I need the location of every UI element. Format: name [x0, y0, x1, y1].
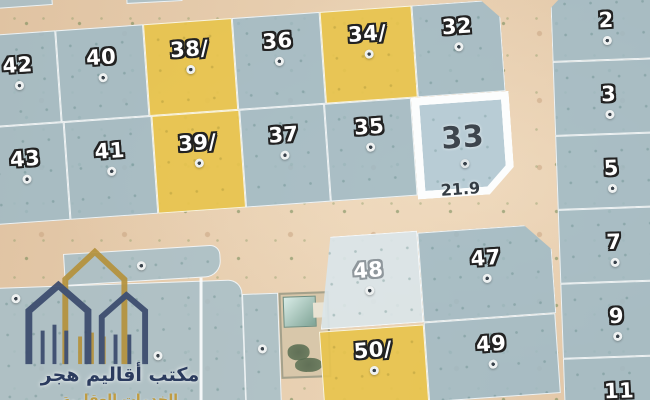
parcel-9[interactable]: 9: [560, 280, 650, 359]
parcel-36[interactable]: 36: [232, 12, 326, 110]
parcel-number: 43: [9, 147, 41, 171]
tree: [295, 357, 322, 372]
parcel-marker-dot: [610, 258, 619, 267]
parcel-39[interactable]: 39/: [151, 110, 246, 214]
parcel-number: 49: [475, 332, 507, 356]
parcel-43[interactable]: 43: [0, 122, 70, 225]
parcel-number: 41: [94, 139, 126, 163]
parcel-34[interactable]: 34/: [320, 6, 418, 104]
parcel-40[interactable]: 40: [55, 24, 149, 122]
parcel-grid: 42 40 38/ 36 34/ 32 43 41: [0, 0, 528, 230]
parcel-38[interactable]: 38/: [143, 18, 238, 116]
parcel-37[interactable]: 37: [239, 104, 331, 208]
parcel-33-selected[interactable]: 33 21.9: [411, 91, 516, 200]
parcel-42[interactable]: 42: [0, 30, 62, 127]
parcel-marker-dot: [153, 351, 162, 360]
parcel-number: 5: [603, 157, 619, 180]
parcel-number: 38/: [169, 37, 209, 62]
parcel-number: 37: [268, 123, 300, 147]
parcel-marker-dot: [98, 73, 108, 83]
parcel-number: 9: [609, 305, 625, 328]
parcel-number: 40: [85, 45, 117, 69]
parcel-marker-dot: [14, 81, 24, 91]
parcel-35[interactable]: 35: [324, 98, 418, 202]
parcel-strip[interactable]: [242, 293, 282, 400]
parcel-number: 34/: [347, 21, 387, 46]
parcel-47[interactable]: 47: [417, 223, 556, 322]
parcel-32[interactable]: 32: [411, 0, 505, 97]
satellite-map: 42 40 38/ 36 34/ 32 43 41: [0, 0, 650, 400]
parcel-marker-dot: [613, 332, 622, 341]
parcel-marker-dot: [280, 150, 290, 160]
south-parcel-block: 48 47 49 50/: [312, 215, 568, 400]
parcel-3[interactable]: 3: [553, 58, 650, 136]
parcel-11[interactable]: 11: [563, 355, 650, 400]
parcel-marker-dot: [194, 158, 204, 168]
parcel-marker-dot: [366, 142, 376, 152]
parcel-sliver[interactable]: [0, 0, 53, 9]
right-parcel-column: 2 3 5 7 9 11: [550, 0, 650, 400]
parcel-number: 39/: [177, 130, 217, 155]
parcel-number: 11: [604, 379, 635, 400]
parcel-marker-dot: [106, 167, 116, 177]
parcel-number: 47: [470, 246, 502, 270]
parcel-marker-dot: [454, 42, 464, 52]
parcel-divider-line: [200, 278, 203, 400]
parcel-block[interactable]: [0, 279, 246, 400]
parcel-48[interactable]: 48: [314, 231, 423, 330]
parcel-sliver[interactable]: [126, 0, 182, 4]
parcel-marker-dot: [274, 57, 284, 67]
parcel-41[interactable]: 41: [64, 116, 159, 220]
parcel-number: 3: [601, 83, 617, 106]
parcel-number: 33: [440, 121, 485, 155]
parcel-marker-dot: [607, 184, 616, 193]
parcel-5[interactable]: 5: [555, 132, 650, 210]
parcel-number: 2: [598, 9, 614, 32]
parcel-marker-dot: [186, 65, 196, 75]
parcel-marker-dot: [137, 261, 147, 271]
parcel-number: 32: [441, 14, 473, 38]
parcel-marker-dot: [11, 294, 20, 303]
parcel-2[interactable]: 2: [550, 0, 650, 62]
parcel-marker-dot: [602, 36, 611, 45]
parcel-number: 36: [262, 29, 294, 53]
parcel-marker-dot: [258, 344, 267, 353]
parcel-marker-dot: [365, 286, 375, 296]
parcel-7[interactable]: 7: [558, 206, 650, 284]
parcel-number: 50/: [353, 338, 393, 363]
building-roof: [283, 296, 317, 328]
parcel-marker-dot: [364, 49, 374, 59]
parcel-number: 7: [606, 231, 622, 254]
parcel-number: 35: [353, 115, 385, 139]
parcel-49[interactable]: 49: [424, 313, 561, 400]
parcel-number: 48: [352, 258, 384, 282]
parcel-50[interactable]: 50/: [319, 324, 429, 400]
parcel-number: 42: [2, 53, 34, 77]
parcel-marker-dot: [460, 159, 470, 169]
parcel-marker-dot: [370, 366, 380, 376]
parcel-strip[interactable]: [63, 244, 222, 286]
parcel-marker-dot: [605, 110, 614, 119]
parcel-marker-dot: [482, 274, 492, 284]
parcel-marker-dot: [22, 175, 32, 185]
edge-length-label: 21.9: [440, 178, 481, 200]
parcel-marker-dot: [488, 359, 498, 369]
